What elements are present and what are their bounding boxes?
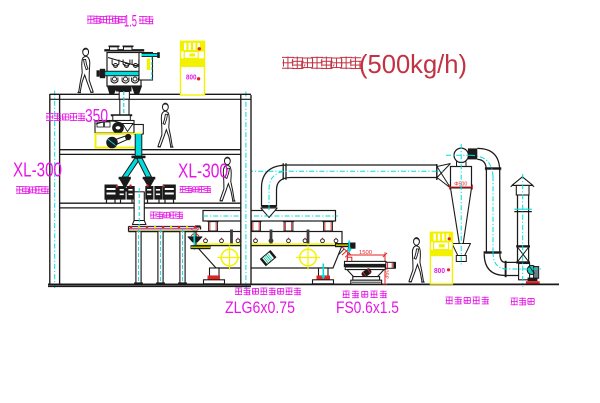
- svg-text:1.5: 1.5: [124, 12, 137, 31]
- svg-text:XL-300: XL-300: [178, 161, 228, 183]
- svg-text:FS0.6x1.5: FS0.6x1.5: [336, 299, 399, 317]
- svg-text:800: 800: [434, 266, 445, 275]
- svg-text:350: 350: [85, 106, 108, 126]
- svg-text:ZLG6x0.75: ZLG6x0.75: [225, 299, 295, 317]
- svg-text:350: 350: [385, 269, 391, 279]
- svg-text:(500kg/h): (500kg/h): [359, 49, 467, 79]
- svg-text:XL-300: XL-300: [13, 160, 62, 182]
- svg-text:800: 800: [186, 73, 197, 82]
